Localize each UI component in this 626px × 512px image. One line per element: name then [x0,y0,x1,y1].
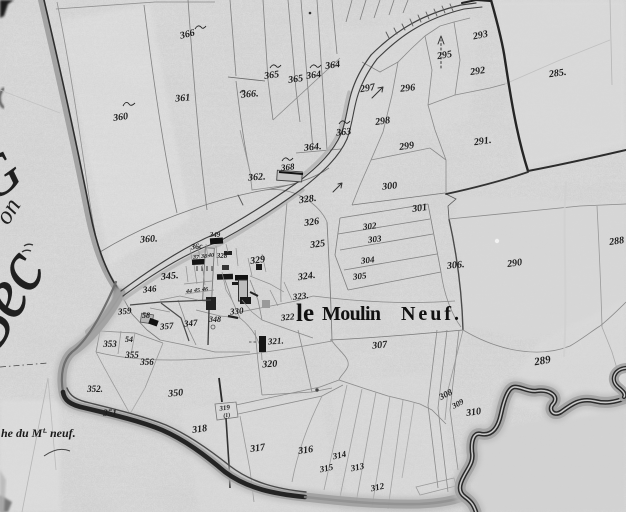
svg-text:346: 346 [141,283,157,295]
svg-text:298: 298 [373,115,390,128]
svg-text:329: 329 [248,254,265,267]
svg-text:322: 322 [279,311,295,323]
svg-text:364: 364 [304,69,321,82]
svg-text:318: 318 [190,423,207,436]
svg-text:328: 328 [216,252,228,260]
svg-text:321.: 321. [267,335,284,346]
svg-text:356: 356 [139,357,154,367]
svg-text:362.: 362. [247,171,266,183]
svg-text:299: 299 [397,140,414,153]
svg-text:36c: 36c [190,241,204,251]
svg-text:353: 353 [102,339,117,349]
svg-text:306.: 306. [445,259,465,272]
svg-text:37: 37 [192,255,200,261]
svg-text:347: 347 [183,317,199,328]
svg-text:330: 330 [229,305,245,316]
svg-text:305: 305 [351,270,367,282]
svg-text:368: 368 [279,161,295,173]
svg-text:348: 348 [208,315,221,324]
svg-text:360.: 360. [139,233,158,245]
svg-text:300: 300 [381,180,398,193]
svg-text:365: 365 [262,69,279,82]
svg-text:292: 292 [468,65,485,78]
svg-text:le: le [296,300,314,327]
svg-text:neuf.: neuf. [50,426,76,440]
svg-text:363: 363 [335,126,352,139]
svg-text:360: 360 [111,111,128,124]
svg-text:(1): (1) [223,412,231,420]
svg-text:302: 302 [361,220,377,232]
svg-text:319: 319 [218,403,231,413]
svg-text:Moulin: Moulin [322,303,381,325]
svg-text:352.: 352. [86,384,103,394]
svg-text:t.: t. [43,426,47,435]
svg-text:359: 359 [117,305,133,316]
svg-text:320: 320 [261,358,278,370]
svg-text:355: 355 [124,350,139,360]
svg-text:316: 316 [296,444,313,457]
svg-text:326: 326 [302,216,319,229]
svg-text:Neuf.: Neuf. [401,303,459,325]
svg-text:351: 351 [102,408,117,418]
svg-text:54: 54 [125,335,133,344]
svg-text:301: 301 [410,202,427,215]
svg-text:357: 357 [159,320,175,331]
svg-text:349: 349 [209,231,221,239]
svg-text:307: 307 [371,339,389,352]
svg-text:310: 310 [464,406,481,419]
svg-text:58: 58 [142,311,150,320]
svg-text:361: 361 [174,92,191,104]
svg-text:365: 365 [286,73,303,86]
svg-text:325: 325 [308,238,325,251]
svg-text:364.: 364. [302,141,322,154]
svg-text:364: 364 [323,59,340,72]
svg-text:290: 290 [505,257,522,270]
svg-text:he du M: he du M [1,426,43,440]
svg-text:296: 296 [399,82,416,95]
svg-text:304: 304 [359,254,375,266]
svg-text:46: 46 [201,287,208,293]
svg-text:303: 303 [366,233,382,245]
svg-text:317: 317 [248,442,266,455]
svg-text:288: 288 [607,235,624,248]
svg-text:345.: 345. [159,270,179,283]
svg-text:38: 38 [200,254,207,260]
svg-text:350: 350 [167,387,184,400]
